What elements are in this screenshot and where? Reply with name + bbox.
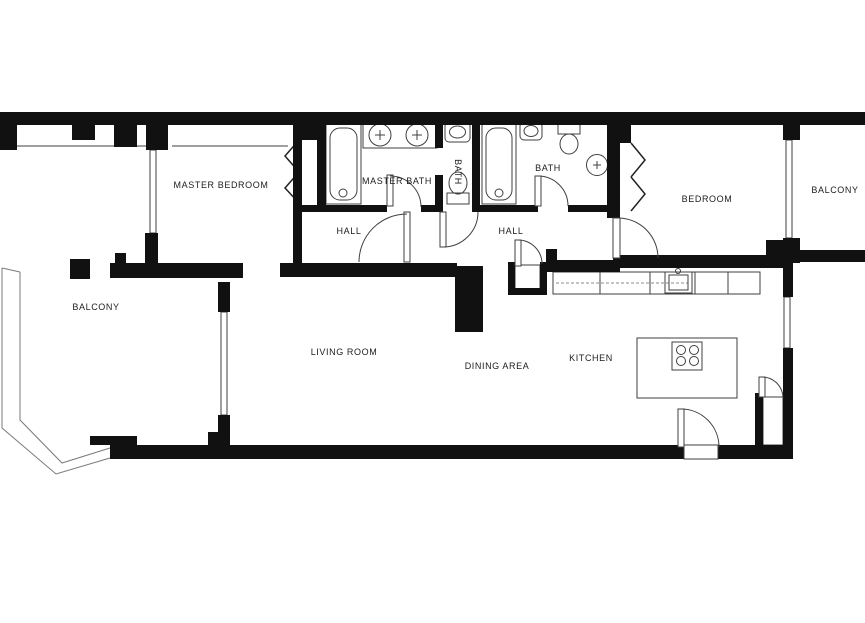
wall-pillar [70, 259, 90, 279]
kitchen-island [637, 338, 737, 398]
bedroom-door [613, 218, 658, 258]
wall-stub [620, 125, 631, 143]
wall [472, 112, 480, 212]
wall-stub [115, 253, 126, 263]
wall-stub [90, 436, 137, 445]
wall [613, 255, 783, 268]
room-label-master-bath: MASTER BATH [362, 176, 432, 186]
kitchen-sink [665, 269, 692, 294]
door-threshold [684, 445, 718, 459]
wall-bottom [718, 445, 793, 459]
wall [293, 205, 387, 212]
wall [508, 288, 547, 295]
wall-stub [546, 249, 557, 260]
wall-top [0, 112, 865, 125]
bathtub [482, 124, 516, 204]
wall [793, 250, 865, 262]
doors-layer [359, 175, 783, 459]
wall [280, 263, 457, 277]
wall [568, 205, 620, 212]
bath2-door [535, 176, 568, 206]
room-label-balcony-left: BALCONY [72, 302, 119, 312]
walls-layer [0, 112, 865, 459]
hall-closet-door [515, 240, 542, 266]
kitchen-exit-door [678, 409, 719, 447]
wall-pillar [72, 125, 95, 140]
room-label-master-bedroom: MASTER BEDROOM [174, 180, 269, 190]
wall-stub [755, 393, 763, 447]
wall [783, 348, 793, 457]
pantry-closet [763, 397, 783, 445]
wall [293, 112, 318, 140]
wall [475, 205, 538, 212]
wall-bottom [110, 445, 684, 459]
room-label-bedroom: BEDROOM [682, 194, 733, 204]
window [784, 297, 790, 348]
washer [587, 155, 608, 176]
wall-stub [783, 112, 800, 140]
wall [146, 112, 168, 150]
wall [145, 233, 158, 264]
pantry-door [759, 377, 783, 398]
wall-stub [218, 415, 230, 447]
wall [110, 263, 243, 278]
toilet [558, 123, 580, 154]
wall [546, 260, 620, 272]
floor-plan: MASTER BEDROOM MASTER BATH BATH BATH BED… [0, 0, 865, 623]
hall-door [359, 212, 410, 262]
wall [421, 205, 440, 212]
wall [0, 112, 17, 150]
wall [317, 112, 326, 212]
room-label-balcony-right: BALCONY [811, 185, 858, 195]
room-label-bath-2: BATH [535, 163, 561, 173]
wall-stub [208, 432, 218, 447]
room-label-hall-right: HALL [499, 226, 524, 236]
stove [672, 342, 702, 370]
room-label-living-room: LIVING ROOM [311, 347, 378, 357]
window [786, 140, 792, 238]
room-label-dining-area: DINING AREA [465, 361, 530, 371]
window [221, 312, 227, 415]
wall [607, 112, 620, 218]
wall-pillar [114, 125, 137, 147]
kitchen-counter [553, 272, 760, 294]
floor-plan-drawing [0, 0, 865, 623]
room-label-hall-left: HALL [337, 226, 362, 236]
bathtub [326, 124, 361, 204]
room-label-kitchen: KITCHEN [569, 353, 613, 363]
fixtures-layer [2, 122, 792, 474]
wall-stub [218, 282, 230, 312]
window [150, 150, 156, 233]
bifold-closet-doors-bedroom [631, 143, 645, 211]
wc-door [440, 212, 478, 247]
room-label-bath-wc: BATH [453, 159, 463, 185]
hall-closet [515, 265, 540, 289]
wall [435, 112, 443, 148]
wall-column [455, 266, 483, 332]
double-sink-vanity [363, 123, 437, 148]
wall [783, 263, 793, 297]
